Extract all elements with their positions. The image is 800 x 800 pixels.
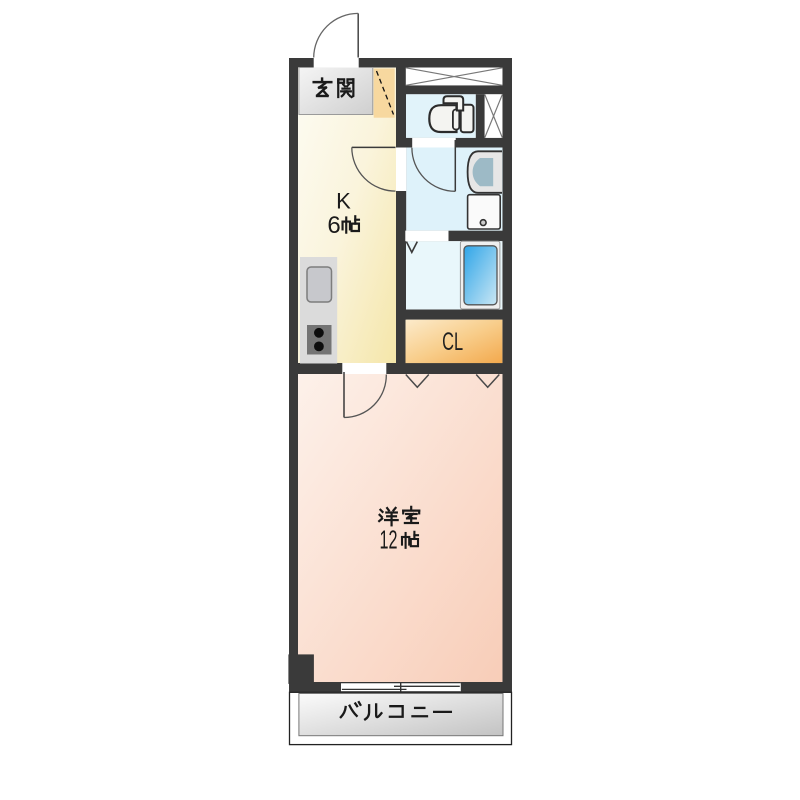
svg-text:6: 6 [327,212,340,239]
svg-text:K: K [336,189,351,214]
svg-text:12: 12 [380,527,398,555]
svg-text:CL: CL [442,328,463,356]
